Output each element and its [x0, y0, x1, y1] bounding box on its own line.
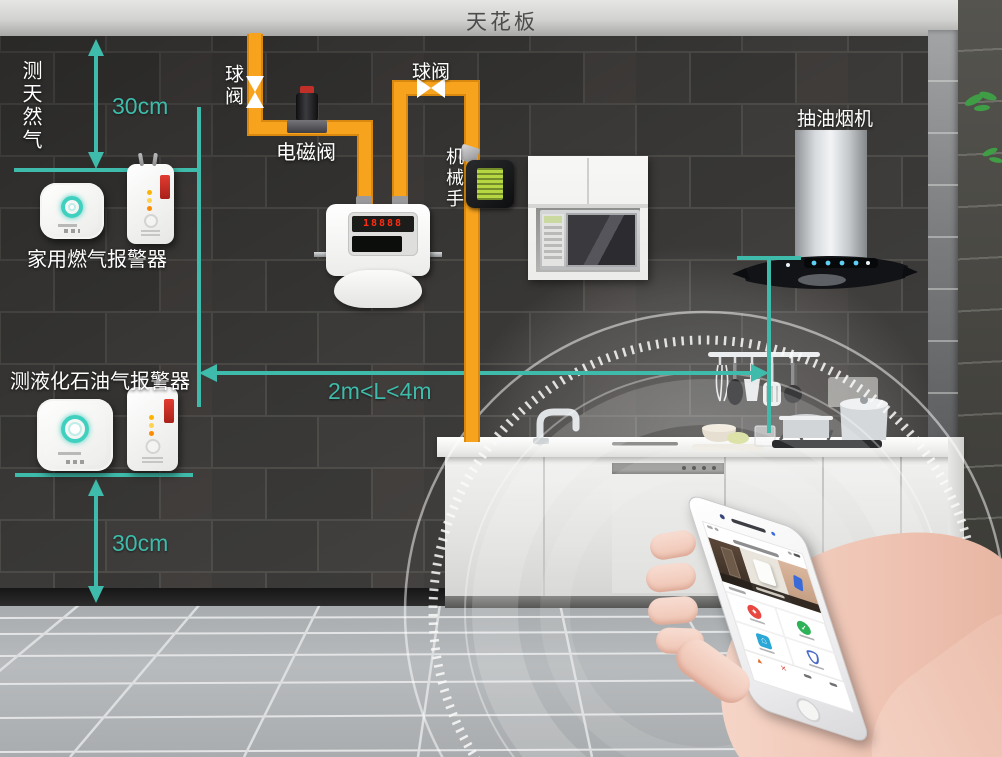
close-icon: ✕	[779, 664, 788, 674]
square-lpg-alarm	[37, 399, 113, 471]
tall-gas-alarm	[127, 164, 174, 244]
manipulator-device	[466, 160, 514, 210]
meter-lcd	[352, 236, 402, 252]
meter-dome	[334, 270, 422, 308]
range-hood-label: 抽油烟机	[797, 104, 873, 131]
manipulator-label: 机械手	[441, 147, 467, 210]
front-camera	[719, 514, 725, 520]
solenoid-flange	[287, 120, 327, 133]
baseboard	[0, 588, 447, 606]
ceiling-offset-value: 30cm	[112, 93, 168, 120]
alarm-icon: ✦	[746, 603, 764, 621]
natural-gas-probe-label: 测天然气	[16, 60, 45, 152]
ceiling-label: 天花板	[466, 6, 538, 36]
flame-icon: ▲	[754, 656, 764, 666]
tall-lpg-alarm	[127, 387, 178, 471]
kitchen-gas-alarm-diagram: 18888 天花板 球阀 球阀 电磁阀 机械手 测天然气	[0, 0, 1002, 757]
floor-offset-value: 30cm	[112, 530, 168, 557]
home-icon: ⌂	[755, 632, 773, 650]
manipulator-screen	[477, 168, 503, 200]
solenoid-body	[296, 93, 318, 121]
lpg-alarm-label: 测液化石油气报警器	[10, 365, 190, 394]
ball-valve-right-label: 球阀	[412, 57, 450, 84]
distance-range-value: 2m<L<4m	[328, 378, 432, 405]
finger	[647, 595, 699, 625]
household-gas-alarm-label: 家用燃气报警器	[27, 243, 167, 272]
square-gas-alarm	[40, 183, 104, 239]
meter-display: 18888	[352, 216, 414, 232]
status-icon: ✓	[795, 619, 813, 637]
gas-meter: 18888	[326, 196, 430, 310]
solenoid-valve-label: 电磁阀	[276, 136, 336, 165]
sensor-dot	[771, 531, 776, 536]
solenoid-valve-device	[287, 86, 327, 134]
ball-valve-left-label: 球阀	[219, 64, 246, 108]
